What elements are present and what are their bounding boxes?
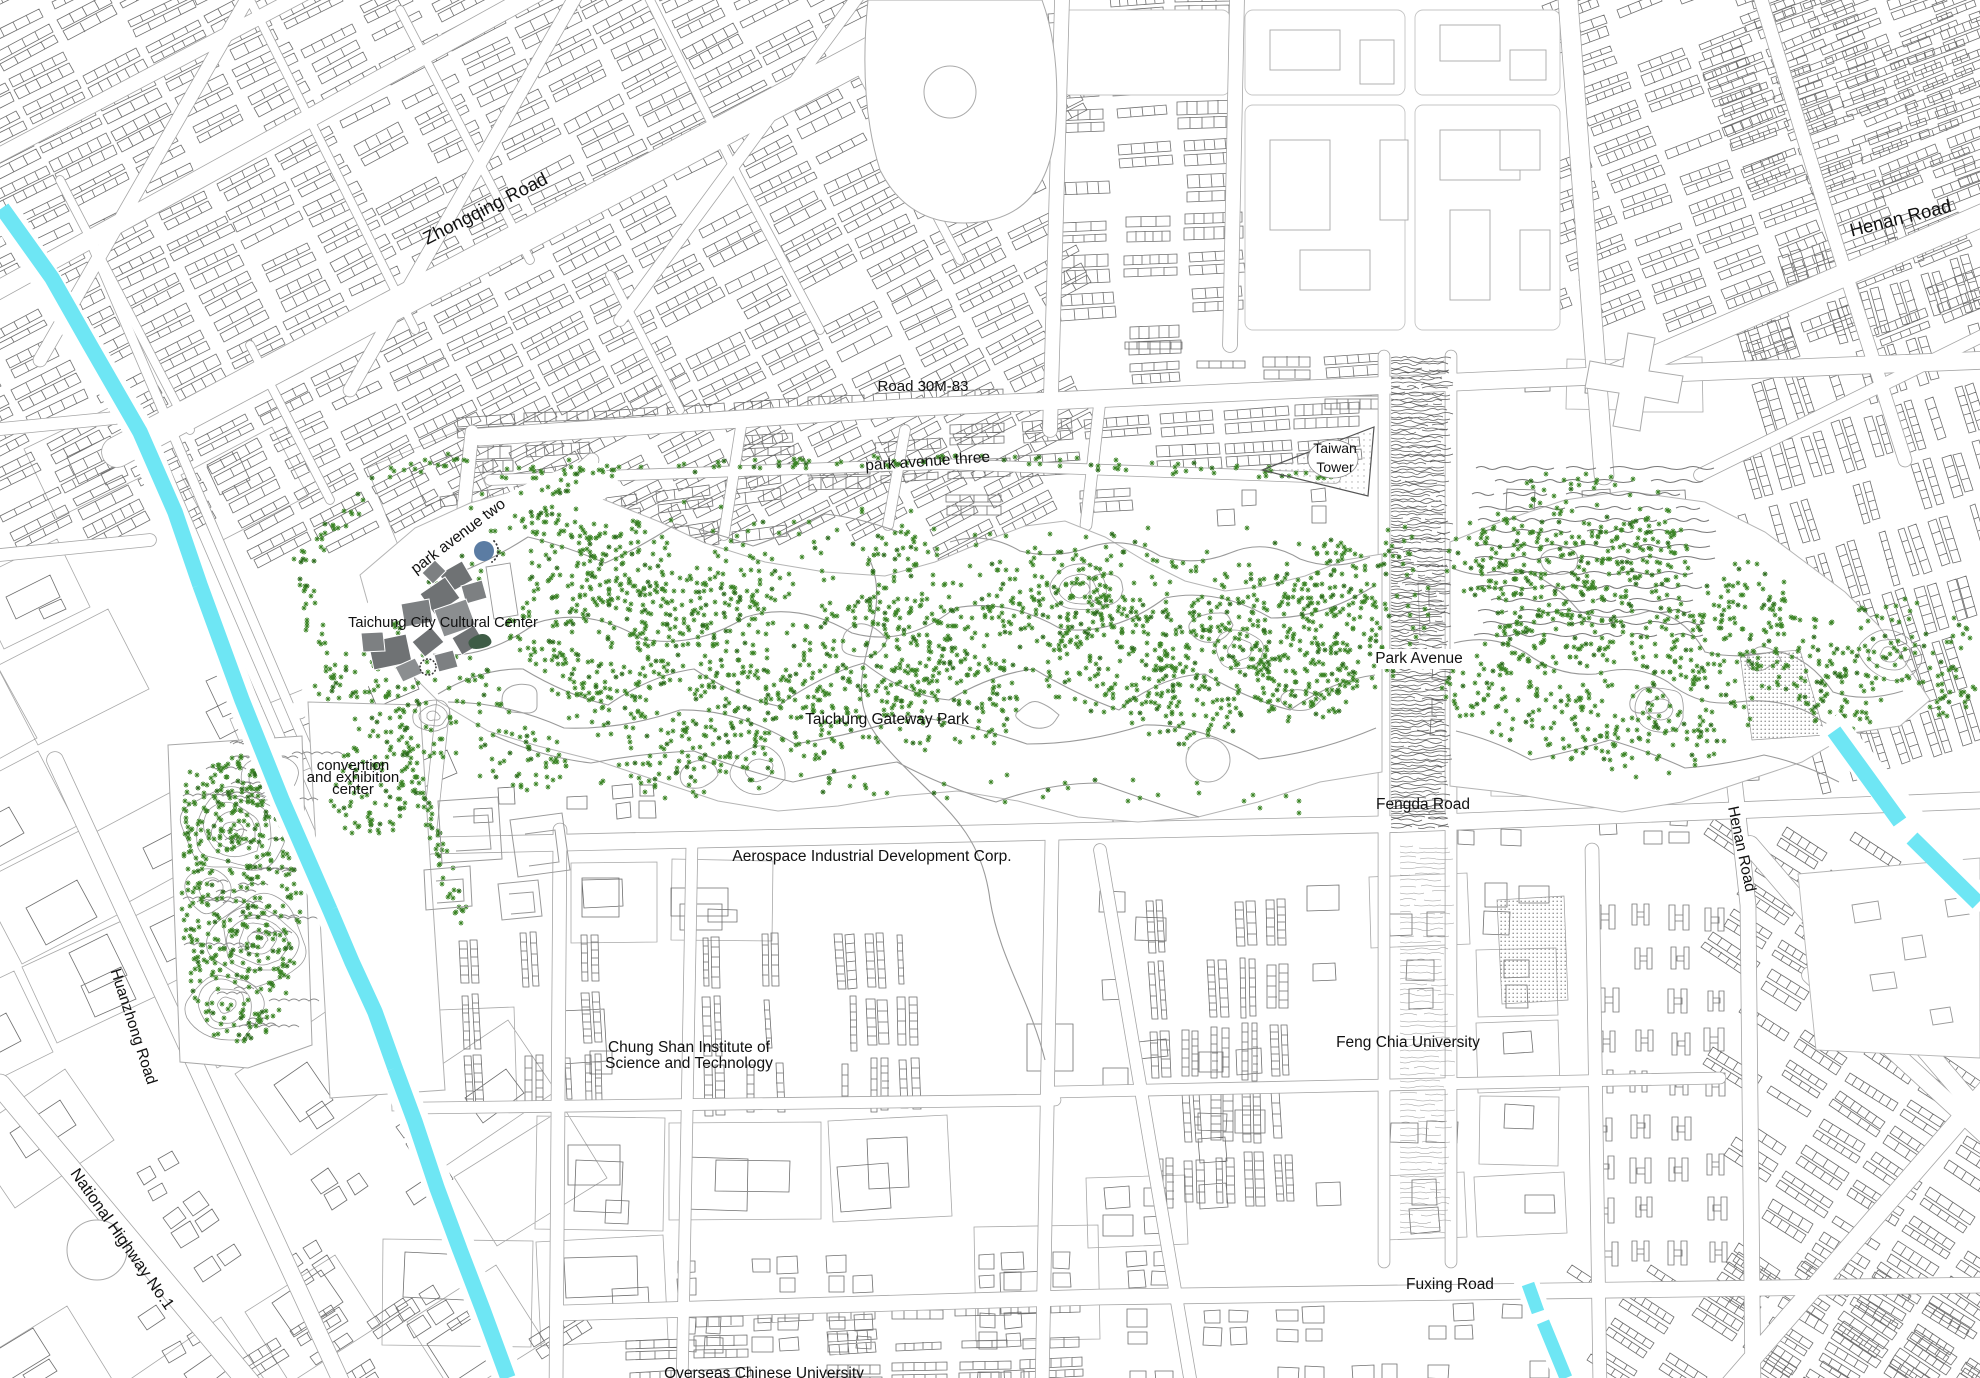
svg-text:Science and Technology: Science and Technology — [605, 1055, 773, 1072]
svg-text:Aerospace Industrial Developme: Aerospace Industrial Development Corp. — [732, 848, 1011, 865]
svg-text:Road 30M-83: Road 30M-83 — [878, 378, 969, 395]
svg-text:center: center — [332, 781, 374, 798]
svg-text:Park Avenue: Park Avenue — [1375, 650, 1463, 667]
svg-text:Fengda Road: Fengda Road — [1376, 796, 1470, 813]
svg-text:Fuxing Road: Fuxing Road — [1406, 1276, 1494, 1293]
svg-text:Taiwan: Taiwan — [1313, 440, 1357, 456]
svg-text:Taichung City Cultural Center: Taichung City Cultural Center — [348, 615, 538, 631]
svg-text:Taichung Gateway Park: Taichung Gateway Park — [805, 711, 969, 728]
svg-text:Feng Chia University: Feng Chia University — [1336, 1034, 1480, 1051]
svg-text:Chung Shan Institute of: Chung Shan Institute of — [608, 1039, 771, 1056]
svg-text:Tower: Tower — [1316, 459, 1354, 475]
svg-text:Overseas Chinese University: Overseas Chinese University — [664, 1365, 864, 1378]
